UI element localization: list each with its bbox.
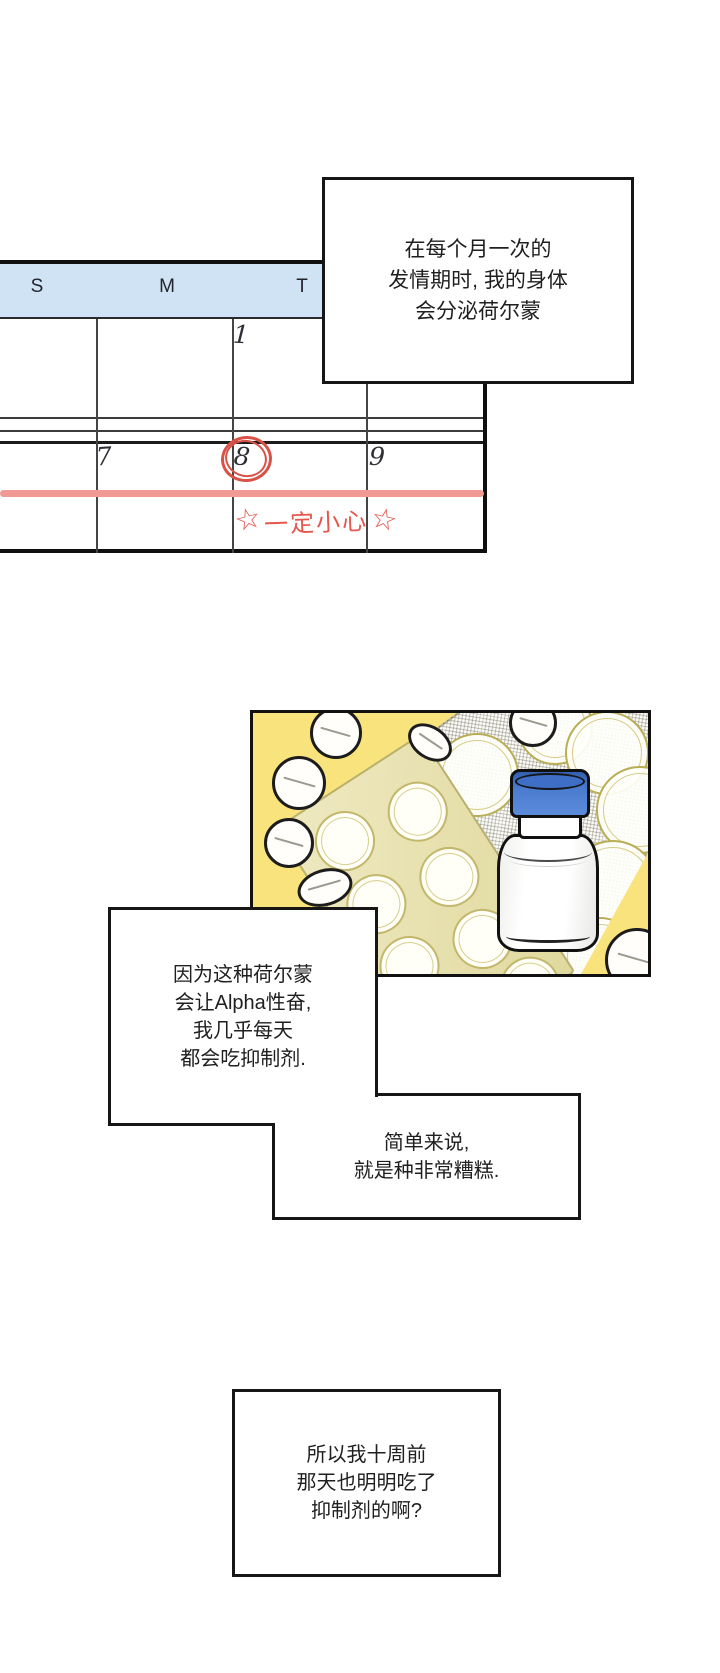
narration-box-4: 所以我十周前 那天也明明吃了 抑制剂的啊? bbox=[232, 1389, 501, 1577]
tablet-icon bbox=[264, 818, 314, 868]
calendar-gridline bbox=[0, 430, 484, 432]
narration-line: 因为这种荷尔蒙 bbox=[173, 961, 313, 989]
pill-bottle-body bbox=[497, 834, 599, 952]
narration-box-1: 在每个月一次的 发情期时, 我的身体 会分泌荷尔蒙 bbox=[322, 177, 634, 384]
tablet-icon bbox=[310, 710, 362, 759]
blister-bump bbox=[376, 770, 459, 853]
calendar-day-header-sun: S bbox=[17, 276, 57, 298]
pink-highlight-band bbox=[0, 490, 484, 497]
blister-bump bbox=[408, 835, 491, 918]
calendar-bottom-border bbox=[0, 549, 487, 553]
narration-line: 就是种非常糟糕. bbox=[354, 1157, 500, 1185]
bottle-cap-top bbox=[515, 773, 585, 790]
bottle-shoulder-line-2 bbox=[509, 852, 587, 867]
calendar-annotation: ☆ 一定小心 ☆ bbox=[228, 503, 403, 538]
box-overlap-join bbox=[275, 1097, 379, 1127]
annotation-text: 一定小心 bbox=[263, 501, 368, 540]
calendar-date-7: 7 bbox=[95, 443, 113, 469]
comic-page: S M T 1 7 8 9 ☆ 一定小心 ☆ 在每个月一次的 发情期时, 我的身… bbox=[0, 0, 720, 1673]
calendar-day-header-mon: M bbox=[147, 276, 187, 298]
bottle-base-line bbox=[506, 930, 590, 943]
narration-line: 我几乎每天 bbox=[193, 1017, 293, 1045]
narration-line: 在每个月一次的 bbox=[405, 234, 552, 265]
calendar-date-9: 9 bbox=[369, 444, 386, 470]
narration-line: 都会吃抑制剂. bbox=[180, 1045, 306, 1073]
narration-line: 简单来说, bbox=[384, 1129, 470, 1157]
narration-line: 会让Alpha性奋, bbox=[175, 989, 312, 1017]
narration-line: 发情期时, 我的身体 bbox=[388, 265, 568, 296]
calendar-column-divider bbox=[96, 319, 98, 553]
narration-line: 会分泌荷尔蒙 bbox=[415, 296, 541, 327]
pill-bottle-cap bbox=[510, 769, 590, 818]
calendar-day-header-tue: T bbox=[282, 276, 322, 298]
narration-line: 所以我十周前 bbox=[307, 1441, 427, 1469]
calendar-date-1: 1 bbox=[232, 322, 249, 348]
calendar-gridline bbox=[0, 417, 484, 419]
narration-box-2: 因为这种荷尔蒙 会让Alpha性奋, 我几乎每天 都会吃抑制剂. bbox=[108, 907, 378, 1126]
tablet-icon bbox=[272, 756, 326, 810]
star-icon: ☆ bbox=[231, 503, 263, 537]
star-icon: ☆ bbox=[368, 504, 399, 538]
narration-line: 抑制剂的啊? bbox=[311, 1497, 422, 1525]
narration-line: 那天也明明吃了 bbox=[297, 1469, 437, 1497]
